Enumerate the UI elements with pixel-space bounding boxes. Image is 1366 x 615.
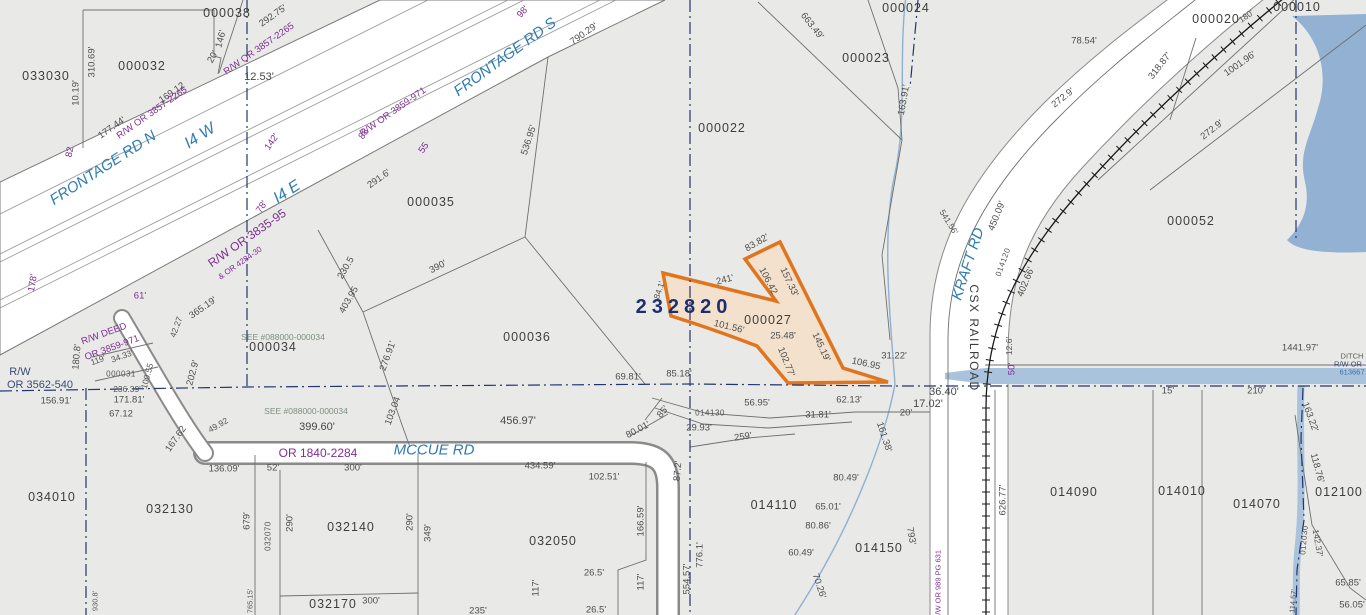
dimension-label: 65.01' [815,502,841,513]
dimension-label: 765.15' [246,588,255,613]
dimension-label: 85.18' [666,369,692,380]
dimension-label: 87.2' [672,460,685,481]
parcel-id-label: 012100 [1315,485,1363,499]
dimension-label: 236.39' [113,384,141,394]
parcel-id-label: 014150 [855,541,903,555]
parcel-id-label: 014010 [1158,484,1206,498]
parcel-id-label: 033030 [22,69,70,83]
parcel-id-label: 000038 [203,6,251,20]
parcel-id-label: 000052 [1167,214,1215,228]
dimension-label: 60.49' [788,548,814,559]
dimension-label: 626.77' [998,484,1009,515]
rw-label: 82 [64,146,77,158]
dimension-label: 80.49' [833,473,859,484]
dimension-label: 67.12 [109,409,133,420]
parcel-map-page: 000038292.75'033030000032310.69'10.19'14… [0,0,1366,615]
dimension-label: 29.93' [686,423,712,434]
dimension-label: 12.53' [244,71,274,83]
dimension-label: 300' [344,463,362,474]
dimension-label: 26.5' [586,605,606,615]
dimension-label: 25.48' [770,331,796,342]
dimension-label: 434.59' [525,461,556,472]
dimension-label: 1441.97' [1282,343,1318,354]
dimension-label: 20' [900,408,913,419]
parcel-id-label: 032050 [529,534,577,548]
road-name: MCCUE RD [394,442,475,459]
dimension-label: 930.8' [91,590,100,611]
dimension-label: 10.19' [71,80,82,106]
parcel-id-label: 000034 [249,340,297,354]
dimension-label: 554.57' [682,563,693,594]
parcel-id-label: 034010 [28,490,76,504]
parcel-id-label: 014110 [751,498,798,512]
map-canvas[interactable]: 000038292.75'033030000032310.69'10.19'14… [0,0,1366,615]
parcel-id-label: 000036 [503,330,551,344]
dimension-label: 310.69' [87,46,98,77]
dimension-label: 52' [267,463,280,474]
parcel-id-label: 000035 [407,195,455,209]
dimension-label: 290' [405,513,416,531]
dimension-label: 290' [285,514,296,532]
parcel-id-label: 014070 [1233,497,1281,511]
parcel-id-label: 032130 [146,502,194,516]
dimension-label: 171.81' [114,395,145,406]
dimension-label: 136.09' [209,464,240,475]
parcel-id-label: 032170 [309,597,357,611]
selected-parcel-number: 232820 [636,296,733,318]
dimension-label: 69.81' [615,372,641,383]
dimension-label: 78.54' [1071,36,1097,47]
dimension-label: 117' [531,579,542,596]
dimension-label: 180.8' [70,344,83,371]
dimension-label: 31.81' [805,410,831,421]
parcel-id-label: 000010 [1273,0,1321,14]
see-reference-note: SEE #088000-000034 [264,406,348,416]
section-ref-label: R/W [9,366,31,378]
parcel-id-label: 000032 [118,59,166,73]
parcel-id-label: 000024 [882,1,930,15]
dimension-label: 166.59' [636,505,647,536]
section-ref-label: OR 3562-540 [7,379,73,391]
rw-label: 61' [134,291,147,302]
dimension-label: 349' [423,524,434,542]
dimension-label: 56.05' [1339,600,1365,611]
parcel-id-label: 032070 [264,521,273,551]
parcel-id-label: 014130 [695,409,725,418]
dimension-label: 210' [1247,386,1265,397]
parcel-id-label: 032140 [327,520,375,534]
parcel-id-label: 000022 [698,121,746,135]
dimension-label: 679' [242,512,253,530]
dimension-label: 102.51' [589,472,620,483]
dimension-label: 399.60' [299,421,335,433]
dimension-label: 65.85' [1335,578,1361,589]
railroad-tick [983,384,991,385]
parcel-id-label: 000020 [1192,12,1240,26]
rw-label: R/W OR 989 PG 631 [934,550,943,615]
rw-label: OR 1840-2284 [279,446,358,460]
dimension-label: 36.40' [929,386,959,398]
dimension-label: 235' [469,606,487,615]
dimension-label: 31.22' [881,351,907,362]
parcel-id-label: 014090 [1050,485,1098,499]
railroad-name: CSX RAILROAD [967,284,981,391]
dimension-label: 300' [362,596,380,607]
dimension-label: 62.13' [836,395,862,406]
parcel-id-label: 000023 [842,51,890,65]
dimension-label: 456.97' [500,415,536,427]
dimension-label: 56.95' [744,398,770,409]
dimension-label: 17.02' [913,398,943,410]
dimension-label: 26.5' [584,568,604,579]
dimension-label: 776.1' [695,542,706,568]
rw-label: 50' [1007,363,1018,376]
parcel-id-label: 000031 [106,370,136,379]
dimension-label: 80.86' [805,521,831,532]
dimension-label: 15' [1162,386,1175,397]
dimension-label: 117' [636,573,647,590]
deed-ref-label: 613667 [1339,368,1364,377]
dimension-label: 12.6' [1004,337,1014,356]
parcel-id-label: 000027 [744,313,792,327]
dimension-label: 156.91' [41,396,72,407]
